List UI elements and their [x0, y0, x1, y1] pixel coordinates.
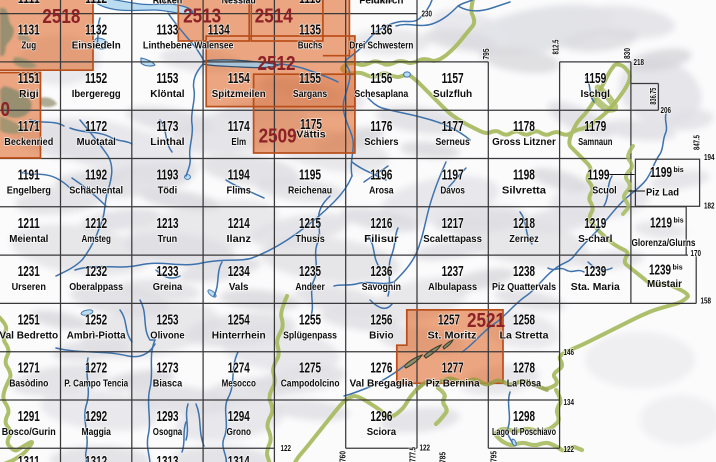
- svg-text:1233: 1233: [156, 263, 178, 280]
- svg-text:1178: 1178: [513, 118, 535, 135]
- svg-text:1191: 1191: [18, 167, 40, 184]
- svg-text:122: 122: [564, 445, 575, 454]
- svg-text:bis: bis: [673, 265, 683, 272]
- svg-text:1275: 1275: [299, 360, 321, 377]
- svg-text:Nesslau: Nesslau: [222, 0, 256, 7]
- svg-text:1253: 1253: [156, 311, 178, 328]
- svg-text:1234: 1234: [228, 263, 250, 280]
- svg-text:1151: 1151: [18, 70, 40, 87]
- svg-text:1131: 1131: [18, 22, 40, 39]
- svg-text:122: 122: [281, 444, 292, 453]
- svg-text:Piz Bernina: Piz Bernina: [426, 378, 480, 390]
- svg-text:830: 830: [623, 48, 632, 59]
- svg-text:1159: 1159: [584, 70, 606, 87]
- svg-text:1231: 1231: [18, 263, 40, 280]
- svg-text:Splügenpass: Splügenpass: [283, 329, 337, 341]
- svg-text:1115: 1115: [299, 0, 321, 7]
- svg-text:134: 134: [564, 398, 575, 407]
- svg-text:1215: 1215: [299, 215, 321, 232]
- svg-text:1136: 1136: [370, 22, 392, 39]
- svg-text:1219: 1219: [584, 215, 606, 232]
- svg-text:1311: 1311: [18, 453, 40, 462]
- svg-text:2514: 2514: [255, 6, 294, 28]
- svg-text:1298: 1298: [513, 408, 535, 425]
- svg-text:Beckenried: Beckenried: [4, 136, 53, 148]
- svg-text:Mesocco: Mesocco: [222, 378, 256, 390]
- svg-text:1199: 1199: [650, 164, 672, 181]
- svg-text:Glorenza/Glurns: Glorenza/Glurns: [632, 237, 696, 249]
- svg-text:1238: 1238: [513, 263, 535, 280]
- svg-text:1214: 1214: [228, 215, 250, 232]
- svg-text:1193: 1193: [156, 167, 178, 184]
- svg-text:Tödi: Tödi: [158, 185, 178, 197]
- svg-text:1156: 1156: [370, 70, 392, 87]
- svg-text:Filisur: Filisur: [364, 233, 398, 245]
- svg-text:Schesaplana: Schesaplana: [354, 88, 408, 100]
- svg-text:Ilanz: Ilanz: [227, 233, 252, 245]
- svg-text:Urseren: Urseren: [12, 281, 46, 293]
- svg-text:1135: 1135: [299, 22, 321, 39]
- svg-text:1216: 1216: [370, 215, 392, 232]
- svg-text:1237: 1237: [442, 263, 464, 280]
- svg-text:847.5: 847.5: [693, 135, 702, 150]
- svg-text:La Stretta: La Stretta: [500, 329, 549, 341]
- svg-text:Basòdino: Basòdino: [9, 378, 48, 390]
- svg-text:Andeer: Andeer: [295, 281, 324, 293]
- svg-text:Meiental: Meiental: [9, 233, 48, 245]
- svg-text:bis: bis: [674, 218, 684, 225]
- svg-text:bis: bis: [674, 167, 684, 174]
- svg-text:1273: 1273: [156, 360, 178, 377]
- svg-text:1235: 1235: [299, 263, 321, 280]
- svg-text:1171: 1171: [18, 118, 40, 135]
- svg-text:Buchs: Buchs: [298, 40, 323, 52]
- svg-text:Olivone: Olivone: [150, 329, 184, 341]
- svg-text:1153: 1153: [156, 70, 178, 87]
- svg-text:1199: 1199: [588, 167, 610, 184]
- svg-text:Feldkirch: Feldkirch: [359, 0, 403, 7]
- svg-text:146: 146: [564, 348, 575, 357]
- svg-text:2520: 2520: [0, 99, 10, 121]
- svg-text:Schiers: Schiers: [364, 136, 398, 148]
- svg-text:Maggia: Maggia: [82, 426, 112, 438]
- svg-text:Osogna: Osogna: [153, 426, 183, 438]
- svg-text:Arosa: Arosa: [369, 185, 394, 197]
- svg-text:Greina: Greina: [153, 281, 183, 293]
- svg-text:1291: 1291: [18, 408, 40, 425]
- svg-text:Linthebene: Linthebene: [143, 40, 192, 52]
- svg-text:1257: 1257: [438, 311, 460, 328]
- svg-text:Vals: Vals: [229, 281, 249, 293]
- svg-text:1274: 1274: [228, 360, 250, 377]
- svg-text:1219: 1219: [650, 215, 672, 232]
- svg-text:1254: 1254: [228, 311, 250, 328]
- svg-text:Val Bedretto: Val Bedretto: [0, 329, 58, 341]
- svg-text:Gross Litzner: Gross Litzner: [492, 136, 556, 148]
- svg-text:1217: 1217: [442, 215, 464, 232]
- svg-text:170: 170: [691, 249, 702, 258]
- svg-text:1213: 1213: [156, 215, 178, 232]
- svg-text:795: 795: [490, 451, 499, 462]
- svg-text:Ibergeregg: Ibergeregg: [72, 88, 121, 100]
- svg-text:Flims: Flims: [227, 185, 252, 197]
- svg-text:1179: 1179: [584, 118, 606, 135]
- svg-text:Piz Quattervals: Piz Quattervals: [492, 281, 556, 293]
- svg-text:Samnaun: Samnaun: [578, 136, 612, 148]
- svg-text:1172: 1172: [85, 118, 107, 135]
- svg-text:1292: 1292: [85, 408, 107, 425]
- svg-text:Klöntal: Klöntal: [150, 88, 184, 100]
- svg-text:1196: 1196: [370, 167, 392, 184]
- svg-text:Muotatal: Muotatal: [77, 136, 116, 148]
- svg-text:1194: 1194: [228, 167, 250, 184]
- svg-text:812.5: 812.5: [552, 39, 561, 54]
- svg-text:1155: 1155: [299, 70, 321, 87]
- svg-text:Einsiedeln: Einsiedeln: [72, 40, 121, 52]
- svg-text:Bivio: Bivio: [369, 329, 394, 341]
- svg-text:Rigi: Rigi: [19, 88, 39, 100]
- svg-text:1255: 1255: [299, 311, 321, 328]
- svg-text:Davos: Davos: [440, 185, 465, 197]
- svg-text:760: 760: [339, 451, 348, 462]
- svg-text:1272: 1272: [85, 360, 107, 377]
- svg-text:Val Bregaglia: Val Bregaglia: [350, 378, 414, 390]
- svg-text:P. Campo Tencia: P. Campo Tencia: [64, 378, 128, 390]
- svg-text:Linthal: Linthal: [150, 136, 184, 148]
- svg-text:1313: 1313: [156, 453, 178, 462]
- svg-text:Bosco/Gurin: Bosco/Gurin: [2, 426, 56, 438]
- svg-text:1271: 1271: [18, 360, 40, 377]
- svg-text:Walensee: Walensee: [194, 40, 233, 52]
- svg-text:Sargans: Sargans: [293, 88, 327, 100]
- svg-text:1132: 1132: [85, 22, 107, 39]
- svg-text:Ischgl: Ischgl: [581, 88, 610, 100]
- svg-text:Hinterrhein: Hinterrhein: [212, 329, 266, 341]
- svg-text:194: 194: [704, 153, 715, 162]
- svg-text:1218: 1218: [513, 215, 535, 232]
- svg-text:Elm: Elm: [231, 136, 246, 148]
- svg-text:Ambrì-Piotta: Ambrì-Piotta: [67, 329, 126, 341]
- svg-text:Müstair: Müstair: [647, 278, 682, 290]
- svg-text:Schächental: Schächental: [69, 185, 123, 197]
- svg-text:Piz Lad: Piz Lad: [646, 187, 679, 199]
- svg-text:1173: 1173: [156, 118, 178, 135]
- svg-text:1314: 1314: [228, 453, 250, 462]
- svg-text:Engelberg: Engelberg: [7, 185, 51, 197]
- svg-text:Sta. Maria: Sta. Maria: [571, 281, 620, 293]
- svg-text:Campodolcino: Campodolcino: [281, 378, 340, 390]
- svg-text:1133: 1133: [156, 22, 178, 39]
- svg-text:Ricken: Ricken: [153, 0, 182, 7]
- svg-text:La Rösa: La Rösa: [507, 378, 541, 390]
- svg-text:1251: 1251: [18, 311, 40, 328]
- svg-text:Vättis: Vättis: [296, 129, 326, 141]
- svg-text:Scalettapass: Scalettapass: [423, 233, 482, 245]
- svg-text:1154: 1154: [228, 70, 250, 87]
- svg-text:158: 158: [701, 296, 712, 305]
- svg-text:1195: 1195: [299, 167, 321, 184]
- svg-text:777.5: 777.5: [409, 447, 418, 462]
- svg-text:1111: 1111: [18, 0, 40, 7]
- svg-text:Grono: Grono: [227, 426, 252, 438]
- svg-text:1239: 1239: [649, 262, 671, 279]
- svg-text:1258: 1258: [513, 311, 535, 328]
- svg-text:1192: 1192: [85, 167, 107, 184]
- svg-text:S-charl: S-charl: [578, 233, 612, 245]
- svg-text:Biasca: Biasca: [153, 378, 183, 390]
- svg-text:1198: 1198: [513, 167, 535, 184]
- svg-text:Drei Schwestern: Drei Schwestern: [349, 40, 413, 52]
- svg-text:1277: 1277: [442, 360, 464, 377]
- svg-text:785: 785: [439, 452, 448, 462]
- svg-text:836.75: 836.75: [649, 87, 658, 104]
- svg-text:1239: 1239: [584, 263, 606, 280]
- svg-text:1252: 1252: [85, 311, 107, 328]
- svg-text:Spitzmeilen: Spitzmeilen: [212, 88, 266, 100]
- svg-text:Sciora: Sciora: [367, 426, 397, 438]
- svg-text:Albulapass: Albulapass: [428, 281, 477, 293]
- svg-text:1212: 1212: [85, 215, 107, 232]
- svg-text:1312: 1312: [85, 453, 107, 462]
- svg-text:1293: 1293: [156, 408, 178, 425]
- svg-text:Lago di Poschiavo: Lago di Poschiavo: [492, 426, 556, 438]
- svg-text:1177: 1177: [442, 118, 464, 135]
- svg-text:Thusis: Thusis: [295, 233, 325, 245]
- svg-text:230: 230: [422, 10, 433, 19]
- svg-text:Zernez: Zernez: [509, 233, 538, 245]
- svg-text:2518: 2518: [42, 6, 80, 28]
- svg-text:Serneus: Serneus: [436, 136, 470, 148]
- svg-text:1176: 1176: [370, 118, 392, 135]
- svg-text:122: 122: [420, 443, 431, 452]
- svg-text:206: 206: [661, 106, 672, 115]
- svg-text:Reichenau: Reichenau: [288, 185, 332, 197]
- svg-text:1236: 1236: [370, 263, 392, 280]
- svg-text:182: 182: [704, 201, 715, 210]
- svg-text:1112: 1112: [85, 0, 107, 7]
- svg-text:Zug: Zug: [21, 40, 36, 52]
- svg-text:1276: 1276: [370, 360, 392, 377]
- svg-text:1278: 1278: [513, 360, 535, 377]
- svg-text:Silvretta: Silvretta: [502, 185, 546, 197]
- svg-text:Oberalppass: Oberalppass: [69, 281, 123, 293]
- svg-text:795: 795: [482, 48, 491, 59]
- svg-text:218: 218: [634, 58, 645, 67]
- svg-text:Scuol: Scuol: [592, 185, 617, 197]
- svg-text:1232: 1232: [85, 263, 107, 280]
- svg-text:Amsteg: Amsteg: [82, 233, 111, 245]
- svg-text:1294: 1294: [228, 408, 250, 425]
- svg-text:Trun: Trun: [158, 233, 178, 245]
- svg-text:1211: 1211: [18, 215, 40, 232]
- svg-text:Sulzfluh: Sulzfluh: [433, 88, 472, 100]
- svg-text:1152: 1152: [85, 70, 107, 87]
- svg-text:1256: 1256: [370, 311, 392, 328]
- svg-text:2512: 2512: [258, 53, 296, 75]
- svg-text:1197: 1197: [442, 167, 464, 184]
- svg-text:Savognin: Savognin: [362, 281, 401, 293]
- svg-text:1296: 1296: [370, 408, 392, 425]
- svg-text:2521: 2521: [467, 310, 505, 332]
- svg-text:1157: 1157: [442, 70, 464, 87]
- svg-text:1174: 1174: [228, 118, 250, 135]
- svg-text:2513: 2513: [183, 6, 221, 28]
- svg-text:2509: 2509: [259, 126, 297, 148]
